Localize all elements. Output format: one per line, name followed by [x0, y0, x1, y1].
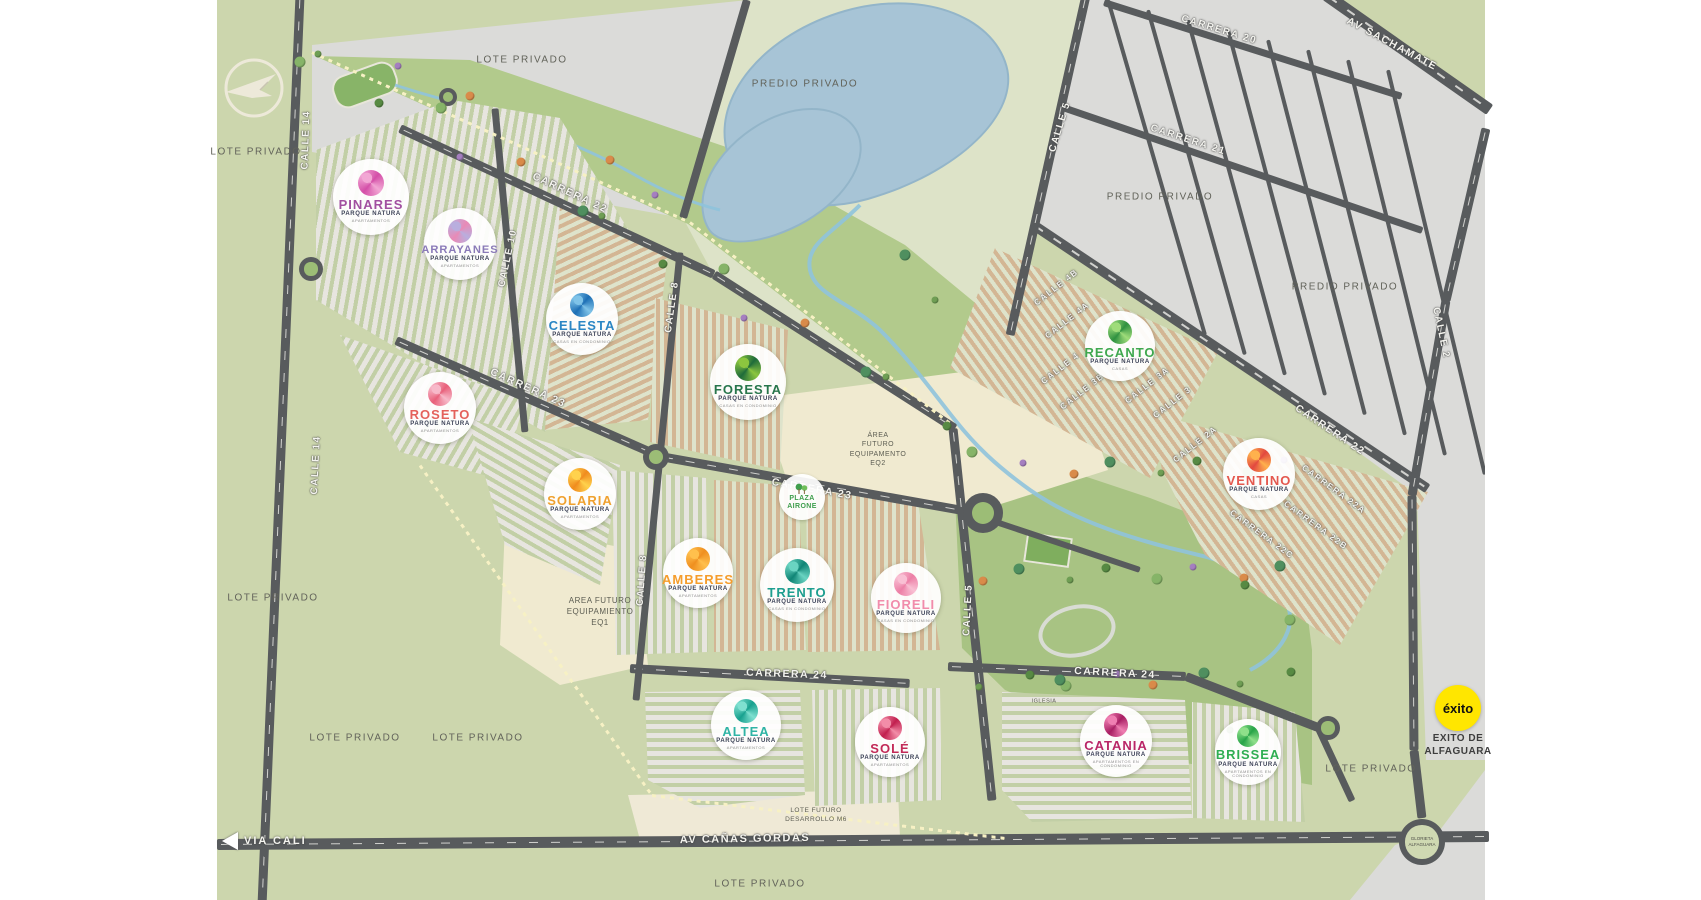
masterplan-map: GLORIETA ALFAGUARA LOTE PRIVADOLOTE PRIV… [0, 0, 1701, 900]
via-cali-label: VIA CALI [244, 835, 307, 847]
left-arrow-icon [222, 832, 238, 850]
exito-logo: éxito [1443, 701, 1473, 716]
via-cali-sign: VIA CALI [222, 832, 307, 850]
exito-store-marker[interactable]: éxito [1435, 685, 1481, 731]
plaza-airone-label: PLAZA AIRONE [787, 495, 817, 511]
plaza-airone-marker[interactable]: PLAZA AIRONE [779, 474, 825, 520]
exito-store-label: EXITO DE ALFAGUARA [1424, 733, 1491, 758]
tree-icon [795, 483, 809, 495]
map-ground [217, 0, 1485, 900]
airplane-logo-icon [218, 52, 290, 124]
